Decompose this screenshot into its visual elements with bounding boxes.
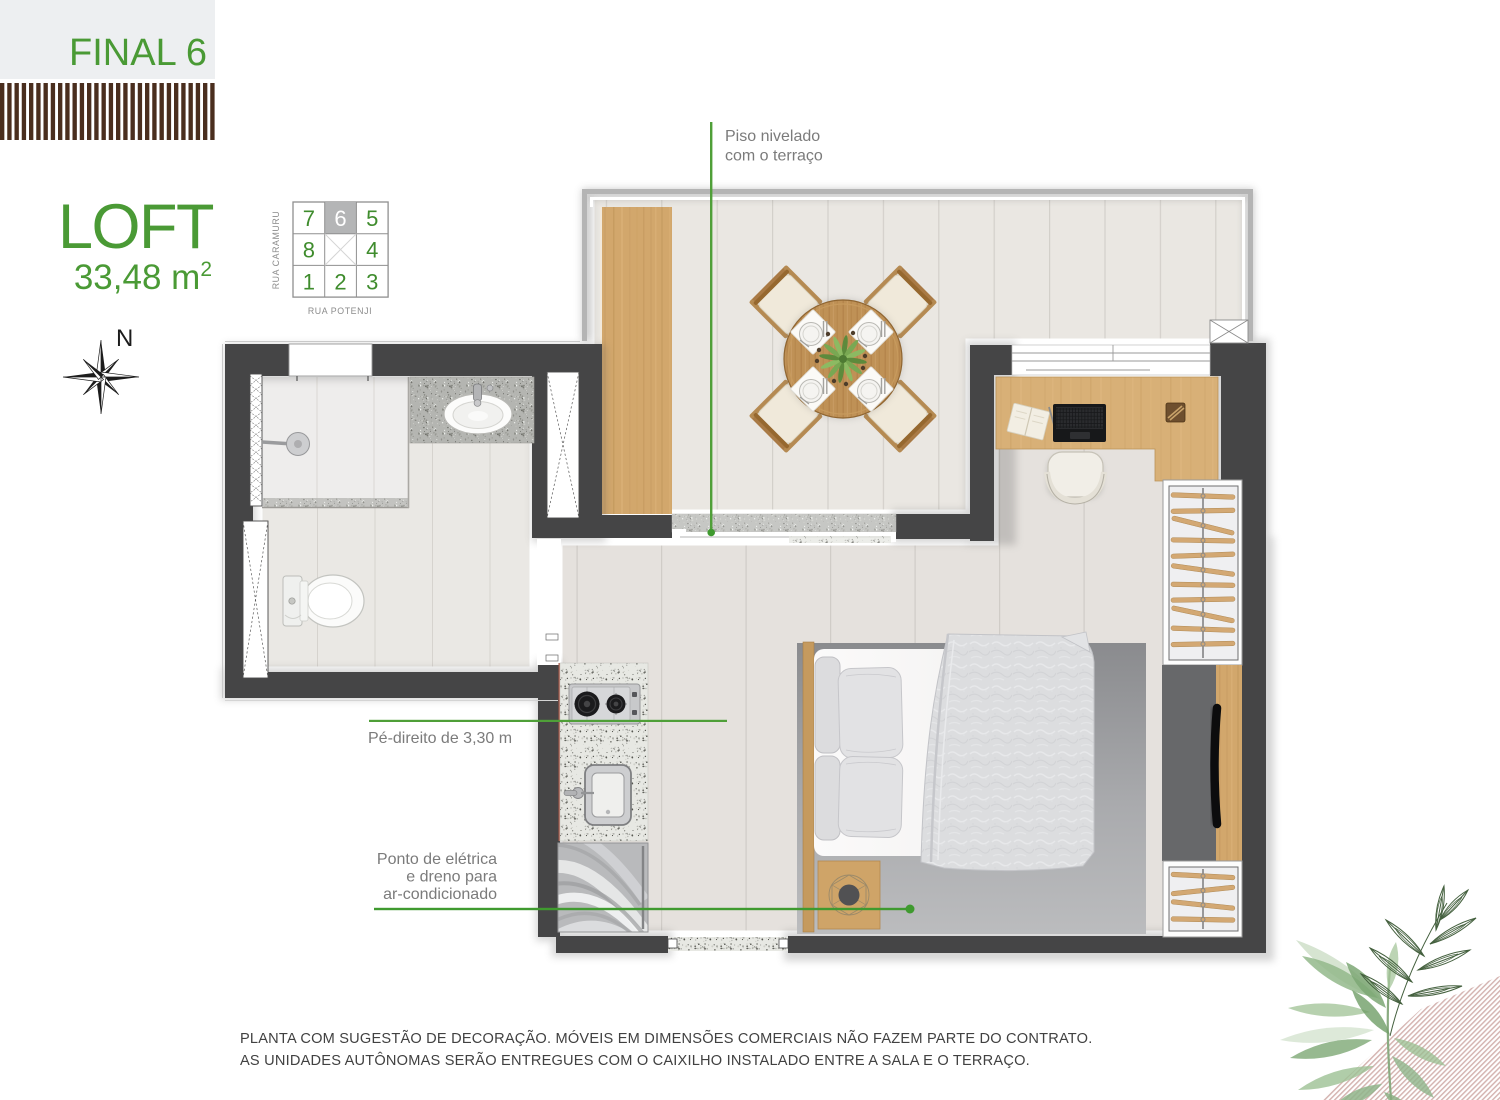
- svg-text:AS UNIDADES AUTÔNOMAS SERÃO EN: AS UNIDADES AUTÔNOMAS SERÃO ENTREGUES CO…: [240, 1052, 1030, 1069]
- svg-text:8: 8: [303, 238, 315, 263]
- svg-text:5: 5: [366, 206, 378, 231]
- svg-text:PLANTA COM SUGESTÃO DE DECORAÇ: PLANTA COM SUGESTÃO DE DECORAÇÃO. MÓVEIS…: [240, 1030, 1092, 1047]
- svg-text:3: 3: [366, 269, 378, 294]
- svg-text:FINAL 6: FINAL 6: [69, 32, 207, 74]
- svg-text:RUA POTENJI: RUA POTENJI: [308, 306, 372, 316]
- svg-text:N: N: [116, 325, 133, 352]
- svg-text:1: 1: [303, 269, 315, 294]
- svg-text:7: 7: [303, 206, 315, 231]
- svg-text:4: 4: [366, 238, 378, 263]
- svg-text:Pé-direito de 3,30 m: Pé-direito de 3,30 m: [368, 730, 512, 747]
- svg-text:6: 6: [334, 206, 346, 231]
- svg-text:33,48 m2: 33,48 m2: [74, 258, 212, 297]
- svg-text:LOFT: LOFT: [58, 192, 214, 262]
- svg-text:2: 2: [334, 269, 346, 294]
- svg-text:RUA CARAMURU: RUA CARAMURU: [271, 211, 281, 290]
